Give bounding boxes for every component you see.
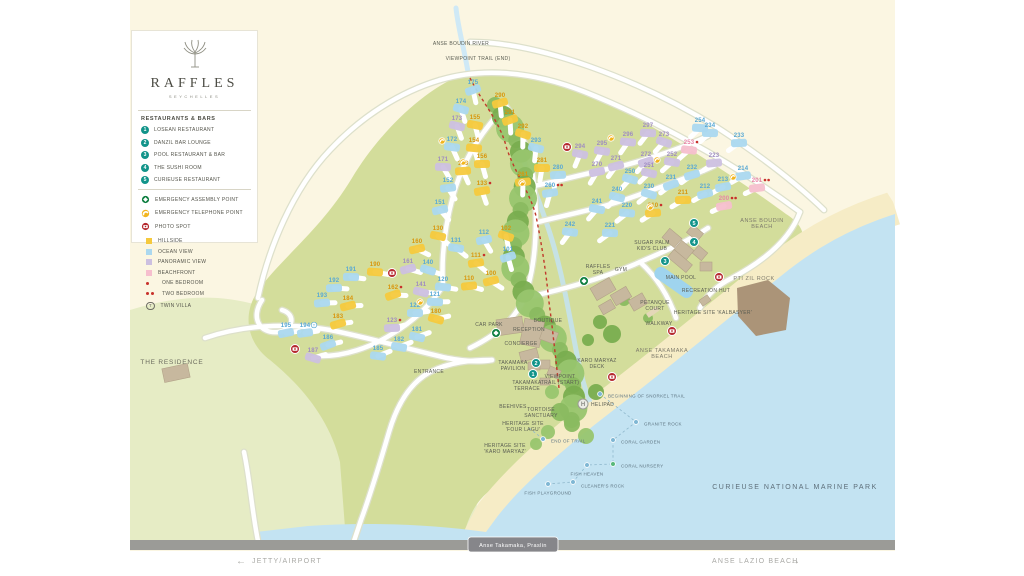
restaurant-number-icon: 2 [141, 139, 149, 147]
label-takamaka-pavilion: TAKAMAKAPAVILION [498, 360, 528, 372]
legend-emergency-telephone-point: EMERGENCY TELEPHONE POINT [141, 209, 249, 218]
legend-panel: RAFFLES SEYCHELLES RESTAURANTS & BARS 1L… [131, 30, 258, 243]
category-swatch-icon [146, 238, 152, 244]
svg-text:294: 294 [575, 144, 586, 150]
svg-text:183: 183 [333, 314, 344, 320]
svg-text:151: 151 [435, 200, 446, 206]
label-beginning-of-snorkel-trail: BEGINNING OF SNORKEL TRAIL [608, 394, 685, 399]
point-label: EMERGENCY TELEPHONE POINT [155, 210, 243, 216]
telephone-point-icon [730, 174, 736, 180]
svg-text:295: 295 [597, 141, 608, 147]
anse-lazio-arrow-icon: → [790, 556, 800, 567]
svg-text:272: 272 [641, 152, 652, 158]
restaurant-number-icon: 5 [141, 176, 149, 184]
svg-text:212: 212 [700, 184, 711, 190]
one-bedroom-dot-icon [146, 282, 156, 285]
svg-text:195: 195 [281, 323, 292, 329]
legend-category-panoramic-view: PANORAMIC VIEW [146, 259, 206, 265]
snorkel-point-end-of-trail [541, 437, 546, 442]
svg-text:194: 194 [300, 323, 311, 329]
category-label: HILLSIDE [158, 238, 183, 244]
label-takamaka-terrace: TAKAMAKATERRACE [512, 380, 542, 392]
svg-text:121: 121 [430, 292, 441, 298]
snorkel-point-fish-playground [546, 482, 551, 487]
restaurant-list: 1LOSEAN RESTAURANT2DANZIL BAR LOUNGE3POO… [140, 126, 249, 184]
snorkel-point-cleaner-s-rock [571, 480, 576, 485]
snorkel-point-coral-garden [611, 438, 616, 443]
telephone-point-icon [141, 209, 149, 217]
legend-restaurant-pool-restaurant-bar: 3POOL RESTAURANT & BAR [141, 151, 249, 159]
svg-text:100: 100 [486, 271, 497, 277]
svg-text:181: 181 [412, 327, 423, 333]
svg-text:292: 292 [518, 124, 529, 130]
svg-text:130: 130 [433, 226, 444, 232]
label-helipad: HELIPAD [591, 402, 614, 408]
svg-text:120: 120 [438, 277, 449, 283]
legend-category-one-bedroom: ONE BEDROOM [146, 280, 206, 286]
photo-spot-icon [388, 269, 397, 278]
category-swatch-icon [146, 259, 152, 265]
villa-category-legend: HILLSIDEOCEAN VIEWPANORAMIC VIEWBEACHFRO… [146, 238, 206, 315]
photo-spot-icon [141, 222, 149, 230]
svg-text:110: 110 [464, 276, 475, 282]
legend-category-ocean-view: OCEAN VIEW [146, 249, 206, 255]
svg-text:201: 201 [752, 178, 763, 184]
svg-text:242: 242 [565, 222, 576, 228]
svg-text:240: 240 [612, 187, 623, 193]
svg-text:174: 174 [456, 99, 467, 105]
svg-text:H: H [581, 402, 585, 408]
svg-text:2: 2 [534, 361, 537, 367]
divider [138, 189, 251, 190]
svg-text:221: 221 [605, 223, 616, 229]
svg-text:187: 187 [308, 348, 319, 354]
label-coral-garden: CORAL GARDEN [621, 440, 660, 445]
svg-text:260: 260 [545, 183, 556, 189]
facility-3: 3 [661, 257, 670, 266]
legend-photo-spot: PHOTO SPOT [141, 222, 249, 231]
point-label: EMERGENCY ASSEMBLY POINT [155, 197, 239, 203]
photo-spot-icon [291, 345, 300, 354]
telephone-point-icon [439, 138, 445, 144]
svg-text:186: 186 [323, 335, 334, 341]
label-boutique: BOUTIQUE [534, 318, 563, 324]
legend-restaurant-danzil-bar-lounge: 2DANZIL BAR LOUNGE [141, 139, 249, 147]
photo-spot-icon [563, 143, 572, 152]
two-bedroom-dots-icon [146, 292, 156, 295]
svg-text:140: 140 [423, 260, 434, 266]
svg-text:131: 131 [451, 238, 462, 244]
category-label: TWO BEDROOM [162, 291, 204, 297]
telephone-point-icon [654, 157, 660, 163]
label-entrance: ENTRANCE [414, 369, 444, 375]
category-label: TWIN VILLA [161, 303, 192, 309]
svg-text:192: 192 [329, 278, 340, 284]
svg-text:273: 273 [659, 132, 670, 138]
label-heritage-site-four-lagu: HERITAGE SITE'FOUR LAGU' [502, 421, 544, 433]
twin-villa-icon: T [146, 302, 155, 311]
legend-category-beachfront: BEACHFRONT [146, 270, 206, 276]
label-pti-zil-rock: PTI ZIL ROCK [733, 276, 774, 282]
svg-text:172: 172 [447, 137, 458, 143]
svg-text:161: 161 [403, 259, 414, 265]
legend-category-two-bedroom: TWO BEDROOM [146, 291, 206, 297]
divider [138, 110, 251, 111]
restaurant-label: LOSEAN RESTAURANT [154, 127, 214, 133]
svg-text:184: 184 [343, 296, 354, 302]
restaurant-label: THE SUSHI ROOM [154, 165, 202, 171]
svg-text:241: 241 [592, 199, 603, 205]
svg-text:160: 160 [412, 239, 423, 245]
assembly-point-icon [141, 195, 149, 203]
assembly-legend-icon [141, 195, 150, 204]
legend-restaurant-curieuse-restaurant: 5CURIEUSE RESTAURANT [141, 176, 249, 184]
label-granite-rock: GRANITE ROCK [644, 422, 682, 427]
restaurants-title: RESTAURANTS & BARS [141, 116, 249, 122]
label-coral-nursery: CORAL NURSERY [621, 464, 663, 469]
facility-5: 5 [690, 219, 699, 228]
telephone-point-icon [608, 135, 614, 141]
svg-text:223: 223 [709, 153, 720, 159]
location-badge-label: Anse Takamaka, Praslin [479, 543, 547, 549]
photo-spot-icon [608, 373, 617, 382]
restaurant-label: DANZIL BAR LOUNGE [154, 140, 211, 146]
snorkel-point-granite-rock [634, 420, 639, 425]
category-label: PANORAMIC VIEW [158, 259, 206, 265]
brand-subtitle: SEYCHELLES [140, 94, 249, 99]
telephone-point-icon [417, 299, 423, 305]
raffles-tree-logo-icon [180, 39, 210, 69]
svg-text:193: 193 [317, 293, 328, 299]
telephone-point-icon [460, 159, 466, 165]
snorkel-point-coral-nursery [611, 462, 616, 467]
svg-text:191: 191 [346, 267, 357, 273]
photo-spot-icon [715, 273, 724, 282]
label-gym: GYM [615, 267, 627, 273]
restaurant-label: CURIEUSE RESTAURANT [154, 177, 220, 183]
svg-text:171: 171 [438, 157, 449, 163]
svg-text:271: 271 [611, 156, 622, 162]
label-anse-boudin-river: ANSE BOUDIN RIVER [433, 41, 489, 47]
svg-text:182: 182 [394, 337, 405, 343]
photo-legend-icon [141, 222, 150, 231]
resort-map-page: 1751741731551721541711561531521331512902… [0, 0, 1024, 576]
brand-block: RAFFLES SEYCHELLES [140, 37, 249, 105]
svg-text:234: 234 [705, 123, 716, 129]
facility-1: 1 [529, 370, 538, 379]
svg-text:112: 112 [479, 230, 490, 236]
brand-name: RAFFLES [140, 76, 249, 92]
svg-text:162: 162 [388, 285, 399, 291]
label-fish-heaven: FISH HEAVEN [571, 472, 604, 477]
label-heritage-site-kalbasyer: HERITAGE SITE 'KALBASYER' [674, 310, 752, 316]
telephone-legend-icon [141, 209, 150, 218]
restaurant-label: POOL RESTAURANT & BAR [154, 152, 225, 158]
svg-text:233: 233 [734, 133, 745, 139]
svg-text:291: 291 [505, 110, 516, 116]
legend-category-twin-villa: TTWIN VILLA [146, 302, 206, 311]
point-label: PHOTO SPOT [155, 224, 191, 230]
svg-text:200: 200 [719, 196, 730, 202]
emergency-points-list: EMERGENCY ASSEMBLY POINTEMERGENCY TELEPH… [140, 195, 249, 231]
telephone-point-icon [519, 180, 525, 186]
svg-text:101: 101 [503, 247, 514, 253]
svg-text:296: 296 [623, 132, 634, 138]
svg-text:133: 133 [477, 181, 488, 187]
svg-text:211: 211 [678, 190, 689, 196]
restaurant-number-icon: 1 [141, 126, 149, 134]
svg-text:3: 3 [663, 259, 666, 265]
label-walkway: WALKWAY [646, 321, 673, 327]
svg-text:123: 123 [387, 318, 398, 324]
label-heritage-site-karo-maryaz: HERITAGE SITE'KARO MARYAZ' [484, 443, 526, 455]
svg-text:152: 152 [443, 178, 454, 184]
snorkel-point-fish-heaven [585, 463, 590, 468]
label-sugar-palm-kid-s-club: SUGAR PALMKID'S CLUB [634, 240, 669, 252]
svg-text:230: 230 [644, 184, 655, 190]
label-viewpoint-trail-end: VIEWPOINT TRAIL (END) [446, 56, 511, 62]
category-swatch-icon [146, 270, 152, 276]
svg-text:214: 214 [738, 166, 749, 172]
label-end-of-trail: END OF TRAIL [551, 439, 586, 444]
svg-text:290: 290 [495, 93, 506, 99]
svg-text:220: 220 [622, 203, 633, 209]
jetty-airport-label: JETTY/AIRPORT [252, 558, 322, 565]
category-label: OCEAN VIEW [158, 249, 193, 255]
label-recreation-hut: RECREATION HUT [682, 288, 730, 294]
svg-text:111: 111 [471, 253, 481, 259]
assembly-point-icon [492, 329, 501, 338]
svg-text:270: 270 [592, 162, 603, 168]
facility-4: 4 [690, 238, 699, 247]
snorkel-point-beginning-of-snorkel-trail [598, 392, 603, 397]
svg-text:297: 297 [643, 123, 654, 129]
legend-restaurant-the-sushi-room: 4THE SUSHI ROOM [141, 164, 249, 172]
legend-category-hillside: HILLSIDE [146, 238, 206, 244]
svg-text:185: 185 [373, 346, 384, 352]
svg-text:1: 1 [531, 372, 534, 378]
svg-text:253: 253 [684, 140, 695, 146]
photo-spot-icon [668, 327, 677, 336]
svg-text:5: 5 [692, 221, 695, 227]
jetty-arrow-icon: ← [236, 556, 246, 567]
svg-text:251: 251 [644, 163, 655, 169]
svg-text:102: 102 [501, 226, 512, 232]
svg-text:261: 261 [518, 172, 529, 178]
restaurant-number-icon: 4 [141, 164, 149, 172]
svg-text:175: 175 [468, 80, 479, 86]
svg-text:180: 180 [431, 309, 442, 315]
telephone-point-icon [647, 204, 653, 210]
legend-restaurant-losean-restaurant: 1LOSEAN RESTAURANT [141, 126, 249, 134]
svg-text:156: 156 [477, 154, 488, 160]
label-curieuse-national-marine-park: CURIEUSE NATIONAL MARINE PARK [712, 484, 878, 491]
label-beehives: BEEHIVES [499, 404, 527, 410]
svg-text:213: 213 [718, 177, 729, 183]
legend-emergency-assembly-point: EMERGENCY ASSEMBLY POINT [141, 195, 249, 204]
svg-text:154: 154 [469, 138, 480, 144]
label-fish-playground: FISH PLAYGROUND [524, 491, 572, 496]
svg-text:232: 232 [687, 165, 698, 171]
svg-text:141: 141 [416, 282, 427, 288]
label-concierge: CONCIERGE [505, 341, 538, 347]
label-main-pool: MAIN POOL [666, 275, 696, 281]
restaurant-number-icon: 3 [141, 151, 149, 159]
helipad-icon: H [578, 399, 588, 409]
svg-text:280: 280 [553, 165, 564, 171]
label-viewpoint-trail-start: VIEWPOINTTRAIL (START) [541, 374, 580, 386]
category-label: BEACHFRONT [158, 270, 195, 276]
svg-text:155: 155 [470, 115, 481, 121]
svg-text:250: 250 [625, 169, 636, 175]
svg-text:190: 190 [370, 262, 381, 268]
category-swatch-icon [146, 249, 152, 255]
assembly-point-icon [580, 277, 589, 286]
svg-text:231: 231 [666, 175, 677, 181]
anse-lazio-label: ANSE LAZIO BEACH [712, 558, 799, 565]
svg-text:252: 252 [667, 152, 678, 158]
category-label: ONE BEDROOM [162, 280, 203, 286]
svg-text:293: 293 [531, 138, 542, 144]
label-reception: RECEPTION [513, 327, 545, 333]
svg-text:173: 173 [452, 116, 463, 122]
facility-2: 2 [532, 359, 541, 368]
label-car-park: CAR PARK [475, 322, 503, 328]
label-the-residence: THE RESIDENCE [140, 359, 203, 366]
svg-text:281: 281 [537, 158, 548, 164]
label-cleaner-s-rock: CLEANER'S ROCK [581, 484, 625, 489]
label-tortoise-sanctuary: TORTOISESANCTUARY [524, 407, 558, 419]
